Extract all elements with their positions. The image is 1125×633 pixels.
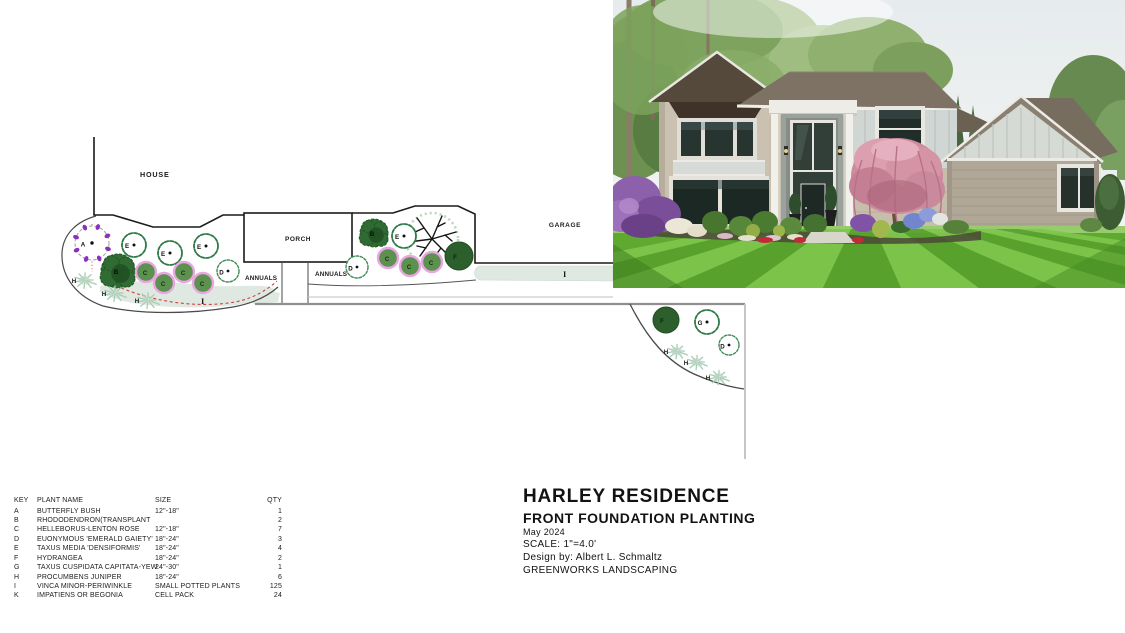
plant-symbol-B: B <box>100 254 135 288</box>
plant-symbol-C: C <box>422 252 442 272</box>
key-table-row: HPROCUMBENS JUNIPER18"-24"6 <box>14 574 282 583</box>
svg-text:D: D <box>219 270 224 277</box>
svg-text:E: E <box>125 243 129 250</box>
plant-symbol-H: H <box>72 272 97 289</box>
plant-symbol-E: E <box>122 233 146 257</box>
svg-text:D: D <box>720 344 725 351</box>
project-designer: Design by: Albert L. Schmaltz <box>523 551 755 564</box>
plant-symbol-C: C <box>154 273 174 293</box>
annuals-label-left: ANNUALS <box>245 275 277 282</box>
svg-text:E: E <box>161 251 165 258</box>
house-photo <box>613 0 1125 288</box>
svg-text:D: D <box>348 266 353 273</box>
plant-symbol-H: H <box>706 370 730 385</box>
key-table-row: IVINCA MINOR-PERIWINKLESMALL POTTED PLAN… <box>14 583 282 592</box>
key-table-row: DEUONYMOUS 'EMERALD GAIETY'18"-24"3 <box>14 536 282 545</box>
project-title: HARLEY RESIDENCE <box>523 486 755 508</box>
svg-text:F: F <box>660 318 664 325</box>
key-table-row: BRHODODENDRON(TRANSPLANT2 <box>14 517 282 526</box>
plant-symbol-H: H <box>684 355 708 370</box>
key-table-row: KIMPATIENS OR BEGONIACELL PACK24 <box>14 592 282 601</box>
svg-text:E: E <box>395 234 399 241</box>
key-table-row: CHELLEBORUS-LENTON ROSE12"-18"7 <box>14 526 282 535</box>
plant-symbol-E: E <box>392 224 416 248</box>
svg-text:H: H <box>684 360 689 367</box>
svg-text:C: C <box>161 282 166 288</box>
plant-symbol-E: E <box>194 234 218 258</box>
svg-text:G: G <box>698 320 703 327</box>
vinca-strip-right <box>475 266 613 281</box>
svg-text:E: E <box>197 244 201 251</box>
svg-text:C: C <box>385 257 390 263</box>
plant-symbol-C: C <box>136 262 156 282</box>
svg-text:H: H <box>72 278 77 285</box>
porch-label: PORCH <box>285 236 311 243</box>
house-label: HOUSE <box>140 170 170 179</box>
plant-symbol-C: C <box>174 262 194 282</box>
project-date: May 2024 <box>523 527 755 538</box>
plant-symbol-A: A <box>72 223 111 262</box>
key-table-row: FHYDRANGEA18"-24"2 <box>14 555 282 564</box>
plant-symbol-C: C <box>193 273 213 293</box>
key-table-row: ABUTTERFLY BUSH12"-18"1 <box>14 508 282 517</box>
plant-symbol-B: B <box>359 219 388 247</box>
plant-symbol-E: E <box>158 241 182 265</box>
annuals-label-right: ANNUALS <box>315 271 347 278</box>
svg-text:H: H <box>664 349 669 356</box>
svg-text:H: H <box>706 375 711 382</box>
svg-text:F: F <box>453 254 457 261</box>
key-table-row: GTAXUS CUSPIDATA CAPITATA-YEW24"-30"1 <box>14 564 282 573</box>
landscape-plan-sheet: AEEEBCCCCDHHHBEDCCCFFGDHHH HOUSE PORCH G… <box>0 0 1125 633</box>
front-walk-edges <box>282 263 308 303</box>
project-subtitle: FRONT FOUNDATION PLANTING <box>523 510 755 526</box>
plant-symbol-D: D <box>217 260 239 282</box>
plant-symbol-C: C <box>400 256 420 276</box>
plant-key-table: KEYPLANT NAMESIZEQTYABUTTERFLY BUSH12"-1… <box>14 497 282 602</box>
plant-symbol-G: G <box>695 310 719 334</box>
svg-text:B: B <box>114 269 119 276</box>
svg-text:H: H <box>102 291 107 298</box>
plant-symbol-C: C <box>378 248 398 268</box>
plant-symbol-F: F <box>653 307 679 333</box>
right-annuals-bed-outline <box>308 280 476 286</box>
svg-text:C: C <box>181 271 186 277</box>
svg-text:C: C <box>143 271 148 277</box>
garage-label: GARAGE <box>549 222 581 229</box>
project-company: GREENWORKS LANDSCAPING <box>523 564 755 577</box>
svg-text:B: B <box>370 231 375 238</box>
svg-text:C: C <box>407 265 412 271</box>
svg-text:C: C <box>200 282 205 288</box>
plant-symbol-D: D <box>719 335 739 355</box>
svg-text:C: C <box>429 261 434 267</box>
plant-symbol-H: H <box>664 344 688 359</box>
title-block: HARLEY RESIDENCE FRONT FOUNDATION PLANTI… <box>523 486 755 577</box>
svg-text:H: H <box>135 298 140 305</box>
key-table-row: ETAXUS MEDIA 'DENSIFORMIS'18"-24"4 <box>14 545 282 554</box>
plant-symbol-F: F <box>445 242 473 270</box>
house-wall-left <box>94 137 244 227</box>
project-scale: SCALE: 1"=4.0' <box>523 538 755 551</box>
key-table-header: KEYPLANT NAMESIZEQTY <box>14 497 282 508</box>
plant-symbol-D: D <box>346 256 368 278</box>
svg-text:A: A <box>81 242 86 249</box>
